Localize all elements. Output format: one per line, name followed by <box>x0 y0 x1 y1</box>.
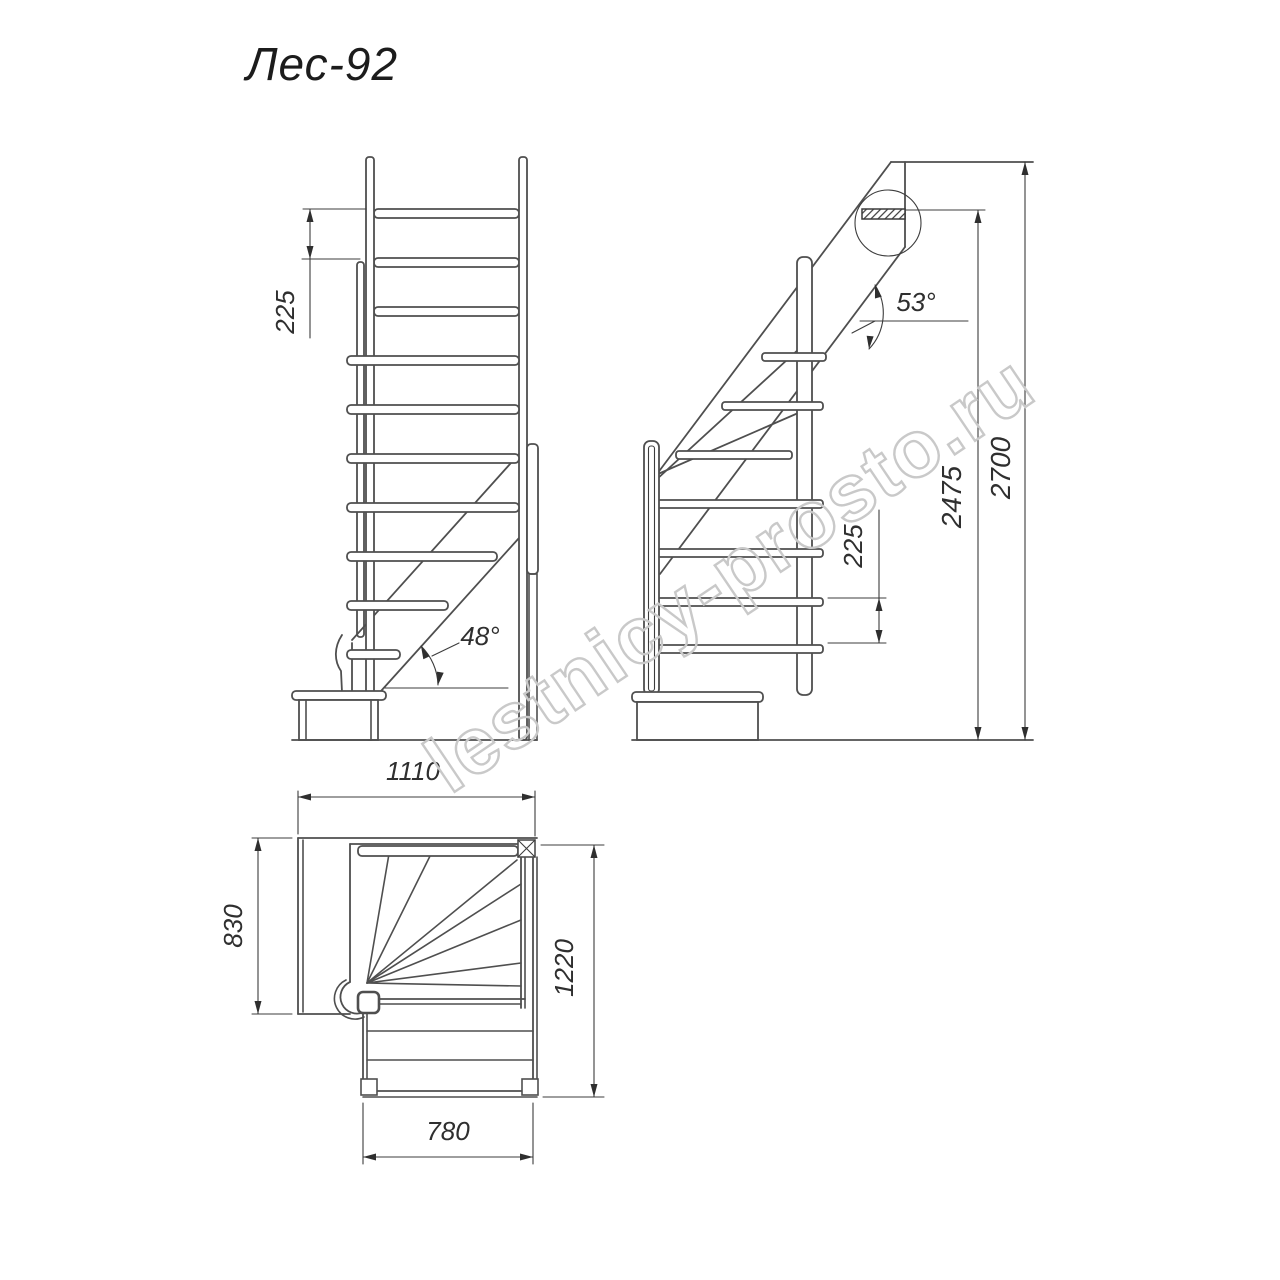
side-plinth-plate <box>632 692 763 702</box>
side-tread <box>676 451 792 459</box>
plan-entry-post-right <box>522 1079 538 1095</box>
front-rail <box>374 209 519 218</box>
front-tread <box>347 601 448 610</box>
front-tread <box>347 405 519 414</box>
plan-top-right-post <box>518 840 535 857</box>
front-tread <box>347 356 519 365</box>
plan-flight-width-text: 780 <box>426 1116 470 1146</box>
side-tread <box>722 402 823 410</box>
drawing-title: Лес-92 <box>243 38 398 90</box>
front-angle-text: 48° <box>460 621 499 651</box>
front-riser-dim-text: 225 <box>270 290 300 335</box>
plan-entry-post-left <box>361 1079 377 1095</box>
side-angle-text: 53° <box>896 287 935 317</box>
front-right-baluster <box>527 444 538 574</box>
front-left-baluster <box>357 262 364 637</box>
front-rail <box>374 307 519 316</box>
front-plinth-box <box>299 700 378 740</box>
front-rail <box>374 258 519 267</box>
front-right-post <box>519 157 527 740</box>
plan-central-newel-post <box>358 992 379 1013</box>
technical-drawing-canvas: Лес-92 <box>0 0 1280 1280</box>
front-tread <box>347 650 400 659</box>
side-plinth-box <box>637 702 758 740</box>
plan-landing-depth-text: 830 <box>218 904 248 948</box>
side-hatched-tread-section <box>862 209 905 219</box>
front-tread <box>347 503 519 512</box>
front-tread <box>347 552 497 561</box>
front-tread <box>347 454 519 463</box>
front-plinth-plate <box>292 691 386 700</box>
plan-top-tread <box>358 846 518 856</box>
side-tread <box>762 353 826 361</box>
plan-right-length-text: 1220 <box>549 939 579 997</box>
